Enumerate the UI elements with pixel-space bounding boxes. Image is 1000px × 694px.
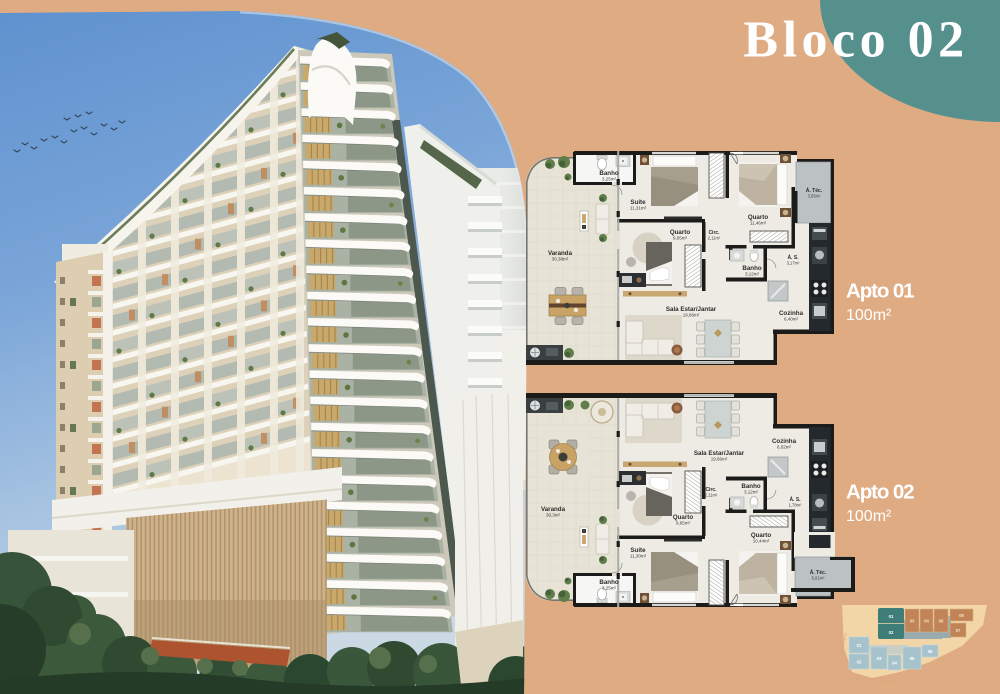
svg-text:11,30m²: 11,30m² — [630, 554, 647, 559]
svg-text:3,17m²: 3,17m² — [787, 261, 800, 266]
svg-text:01: 01 — [857, 643, 862, 648]
svg-text:04: 04 — [892, 661, 897, 666]
svg-text:Apto 01: Apto 01 — [846, 280, 914, 303]
svg-text:07: 07 — [956, 628, 961, 633]
svg-text:3,55m²: 3,55m² — [808, 194, 821, 199]
svg-text:19,86m²: 19,86m² — [711, 457, 728, 462]
svg-text:9,65m²: 9,65m² — [676, 521, 691, 526]
svg-text:01: 01 — [889, 614, 894, 619]
svg-text:6,02m²: 6,02m² — [777, 445, 792, 450]
svg-text:3,12m²: 3,12m² — [744, 490, 759, 495]
svg-text:19,86m²: 19,86m² — [683, 313, 700, 318]
svg-text:03: 03 — [910, 619, 915, 624]
svg-text:11,31m²: 11,31m² — [630, 206, 647, 211]
svg-text:10,44m²: 10,44m² — [753, 539, 770, 544]
svg-text:Apto 02: Apto 02 — [846, 481, 914, 504]
svg-text:2,11m²: 2,11m² — [705, 493, 718, 498]
svg-text:9,05m²: 9,05m² — [673, 236, 688, 241]
svg-text:06: 06 — [928, 649, 933, 654]
svg-text:03: 03 — [877, 656, 882, 661]
svg-text:100m²: 100m² — [846, 307, 892, 324]
svg-text:3,25m²: 3,25m² — [602, 177, 617, 182]
svg-text:3,12m²: 3,12m² — [745, 272, 760, 277]
svg-text:30,38m²: 30,38m² — [552, 257, 569, 262]
svg-text:02: 02 — [889, 630, 894, 635]
svg-text:6,40m²: 6,40m² — [784, 317, 799, 322]
svg-text:05: 05 — [910, 656, 915, 661]
svg-text:Bloco 02: Bloco 02 — [743, 12, 968, 69]
svg-text:05: 05 — [939, 619, 944, 624]
svg-text:2,11m²: 2,11m² — [708, 236, 721, 241]
svg-text:1,78m²: 1,78m² — [789, 503, 802, 508]
svg-text:06: 06 — [959, 613, 964, 618]
svg-text:04: 04 — [924, 619, 929, 624]
svg-text:30,3m²: 30,3m² — [546, 513, 561, 518]
svg-text:11,46m²: 11,46m² — [750, 221, 767, 226]
svg-text:02: 02 — [857, 660, 862, 665]
svg-text:5,61m²: 5,61m² — [812, 576, 825, 581]
svg-text:100m²: 100m² — [846, 508, 892, 525]
svg-text:3,25m²: 3,25m² — [602, 586, 617, 591]
